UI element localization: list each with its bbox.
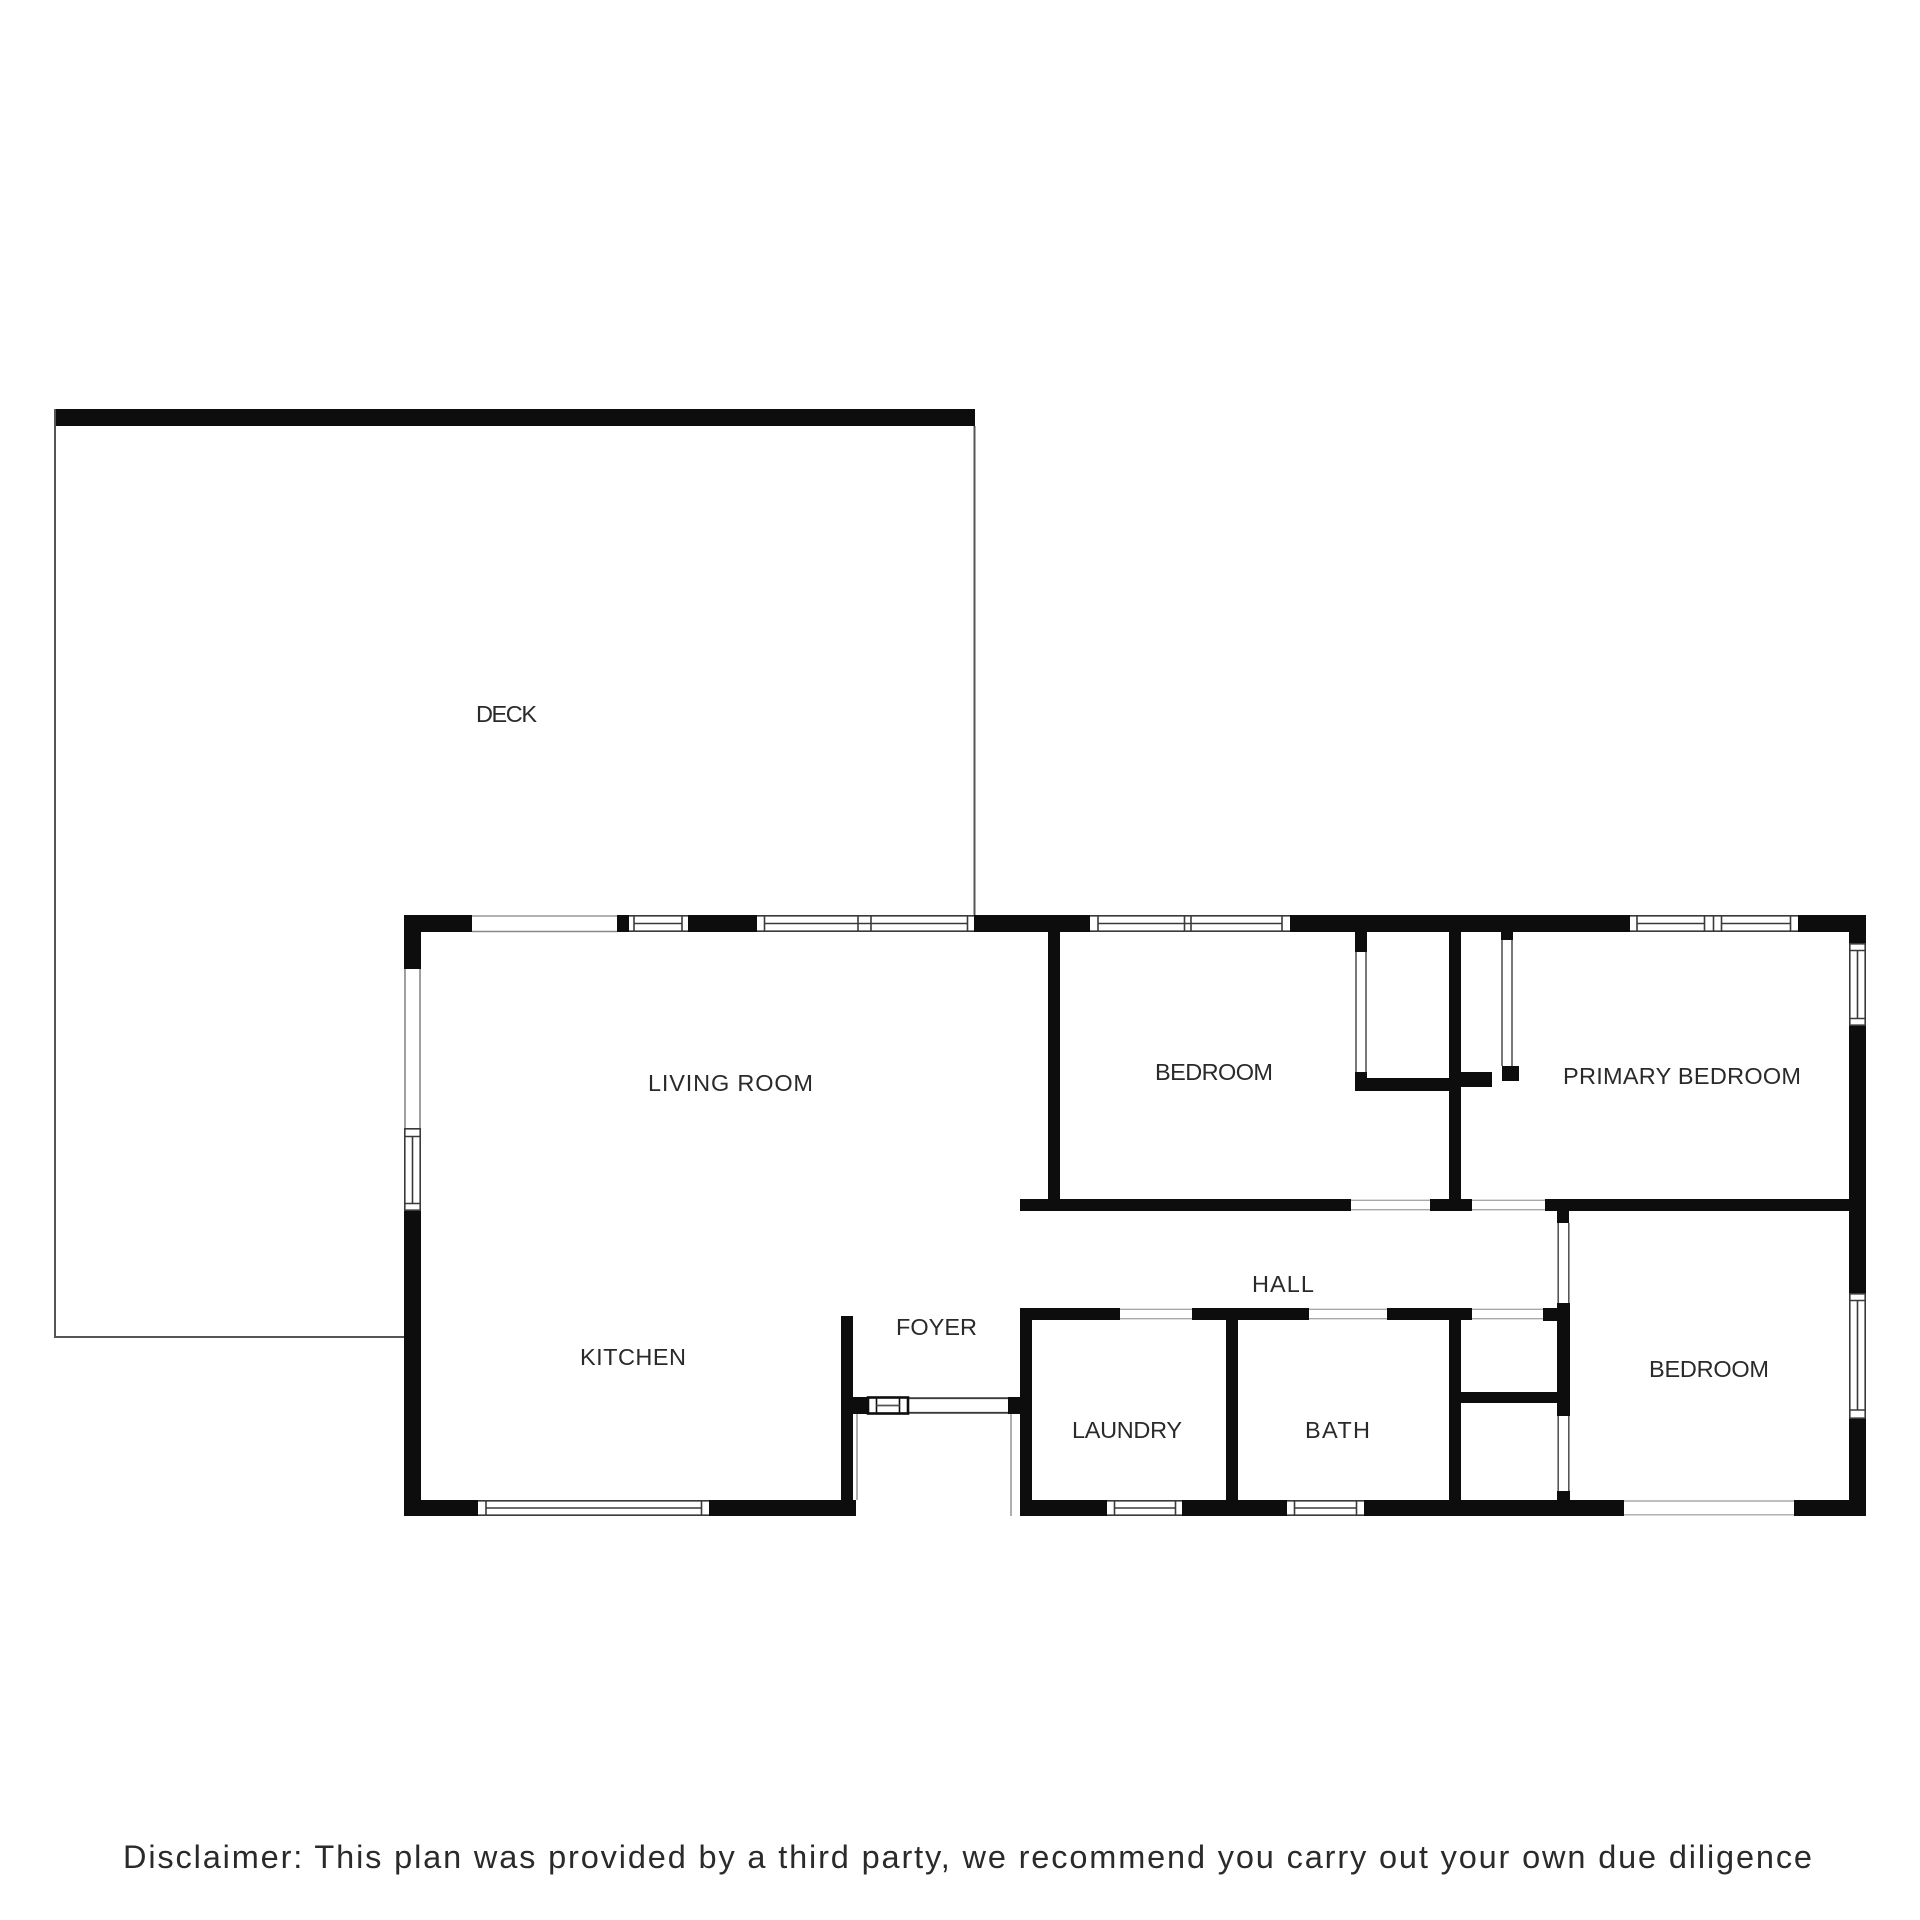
svg-text:Disclaimer: This plan was prov: Disclaimer: This plan was provided by a … [123,1839,1812,1875]
svg-text:PRIMARY BEDROOM: PRIMARY BEDROOM [1563,1063,1801,1089]
svg-text:DECK: DECK [476,701,537,727]
svg-text:HALL: HALL [1252,1271,1314,1297]
svg-text:LIVING ROOM: LIVING ROOM [648,1070,813,1096]
svg-text:BEDROOM: BEDROOM [1649,1356,1769,1382]
svg-text:FOYER: FOYER [896,1314,977,1340]
svg-text:KITCHEN: KITCHEN [580,1344,686,1370]
svg-text:BEDROOM: BEDROOM [1155,1059,1273,1085]
svg-text:BATH: BATH [1305,1417,1370,1443]
svg-text:LAUNDRY: LAUNDRY [1072,1417,1182,1443]
